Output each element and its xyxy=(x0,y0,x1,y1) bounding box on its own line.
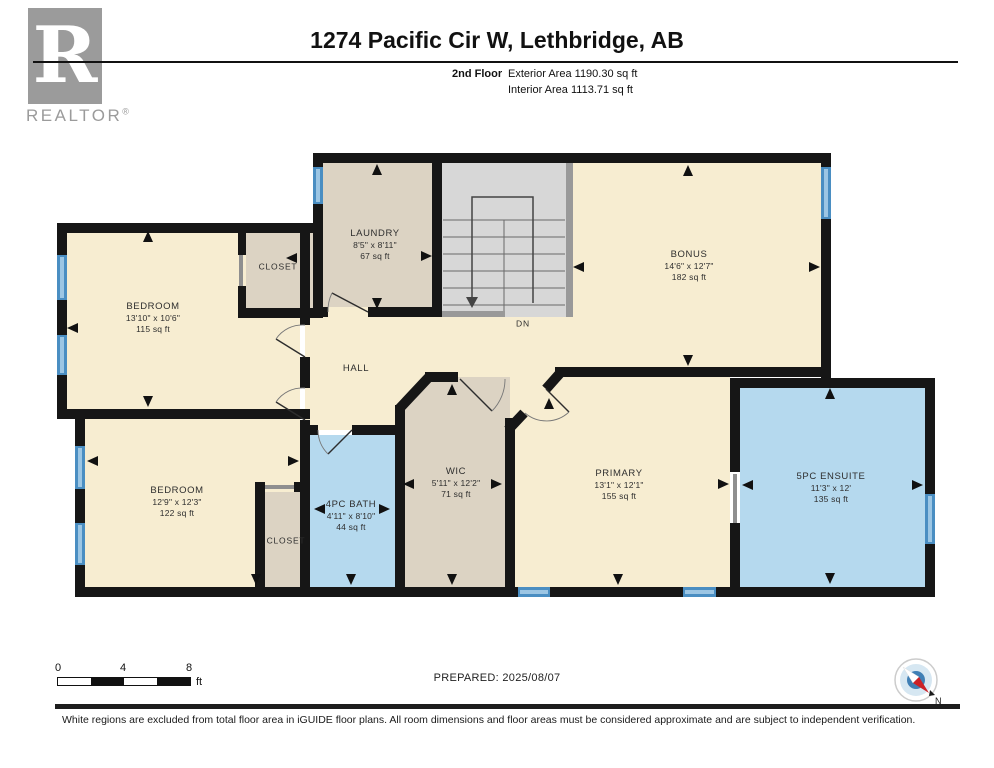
footer-divider xyxy=(55,704,960,709)
bonus-floor xyxy=(570,163,821,367)
floor-plan-page: R REALTOR® 1274 Pacific Cir W, Lethbridg… xyxy=(0,0,994,768)
window xyxy=(518,587,550,597)
window xyxy=(821,167,831,219)
window xyxy=(57,335,67,375)
window xyxy=(75,523,85,565)
compass-icon: N xyxy=(888,652,958,708)
primary-floor xyxy=(510,377,730,587)
window xyxy=(75,446,85,489)
ensuite-floor xyxy=(740,388,925,587)
disclaimer-text: White regions are excluded from total fl… xyxy=(62,714,962,726)
closet2-floor xyxy=(265,492,300,587)
closet2-sliding-door xyxy=(265,485,294,489)
prepared-date: PREPARED: 2025/08/07 xyxy=(0,672,994,684)
window xyxy=(683,587,716,597)
laundry-floor xyxy=(323,163,432,307)
window xyxy=(925,494,935,544)
floor-plan-svg xyxy=(0,0,994,768)
closet1-sliding-door xyxy=(239,255,243,286)
window xyxy=(57,255,67,300)
ensuite-sliding-door xyxy=(733,474,737,523)
window xyxy=(313,167,323,204)
